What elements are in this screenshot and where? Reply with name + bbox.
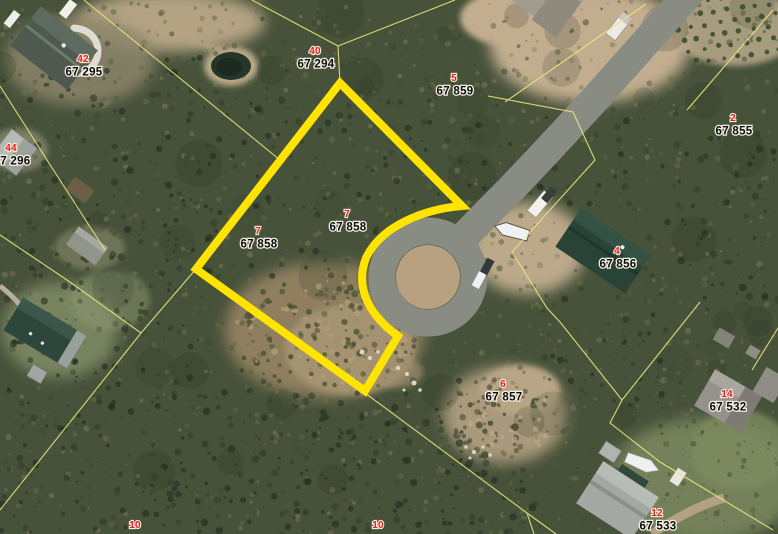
pond xyxy=(211,52,251,80)
lot-number: 7 xyxy=(344,209,350,220)
parcel-id: 67 532 xyxy=(710,402,747,414)
lot-number: 42 xyxy=(77,54,89,65)
lot-number: 10 xyxy=(372,520,384,531)
parcel-id: 67 296 xyxy=(0,156,30,168)
parcel-id: 67 858 xyxy=(241,239,278,251)
lot-number: 12 xyxy=(651,508,663,519)
lot-number: 14 xyxy=(721,389,733,400)
lot-number: 44 xyxy=(5,143,17,154)
lot-number: 7 xyxy=(255,226,261,237)
lot-number: 4 xyxy=(614,246,620,257)
parcel-id: 67 533 xyxy=(640,521,677,533)
parcel-id: 67 856 xyxy=(600,259,637,271)
cul-de-sac-island xyxy=(396,245,460,309)
map-viewport[interactable]: 4267 2954467 2964067 294567 859267 85576… xyxy=(0,0,778,534)
lot-number: 2 xyxy=(730,113,736,124)
lot-number: 10 xyxy=(129,520,141,531)
parcel-label: 10 xyxy=(372,520,384,531)
parcel-id: 67 859 xyxy=(437,86,474,98)
aerial-parcel-map[interactable]: 4267 2954467 2964067 294567 859267 85576… xyxy=(0,0,778,534)
parcel-id: 67 295 xyxy=(66,67,103,79)
lot-number: 40 xyxy=(309,46,321,57)
lot-number: 6 xyxy=(500,379,506,390)
parcel-id: 67 857 xyxy=(486,392,523,404)
parcel-id: 67 294 xyxy=(298,59,335,71)
parcel-label: 10 xyxy=(129,520,141,531)
parcel-id: 67 858 xyxy=(330,222,367,234)
parcel-id: 67 855 xyxy=(716,126,753,138)
lot-number: 5 xyxy=(451,73,457,84)
